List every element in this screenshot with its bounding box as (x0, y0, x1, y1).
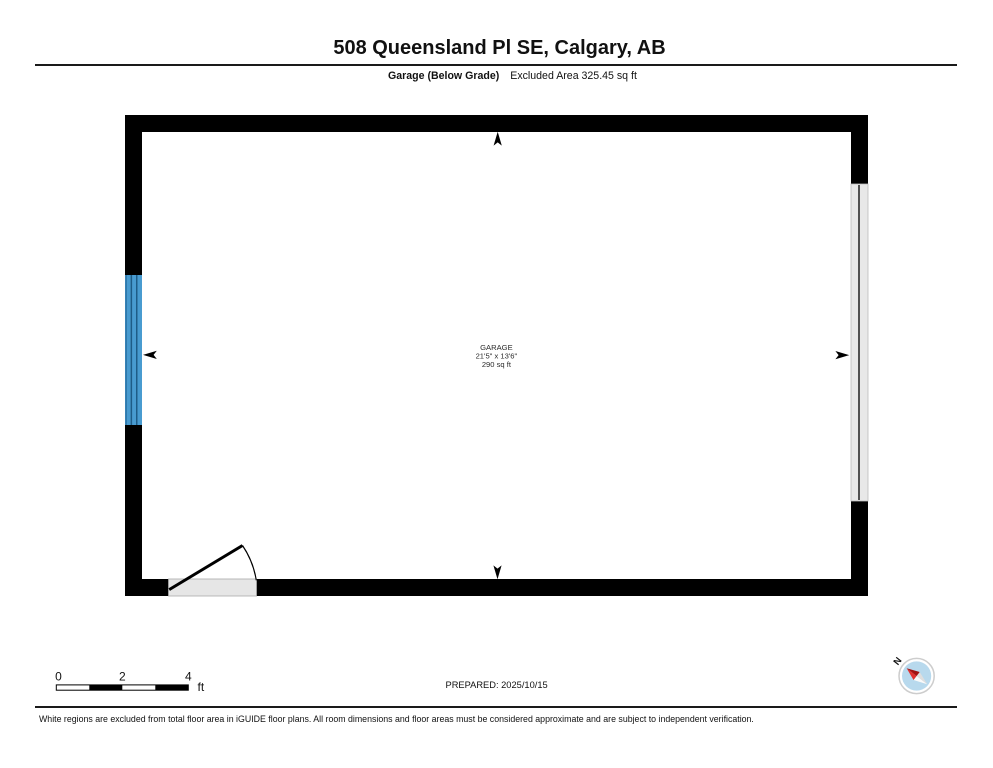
svg-text:0: 0 (55, 669, 62, 683)
svg-text:2: 2 (119, 669, 126, 683)
svg-text:PREPARED: 2025/10/15: PREPARED: 2025/10/15 (446, 680, 548, 690)
svg-text:ft: ft (198, 680, 205, 694)
svg-text:290 sq ft: 290 sq ft (482, 360, 512, 369)
svg-text:4: 4 (185, 669, 192, 683)
